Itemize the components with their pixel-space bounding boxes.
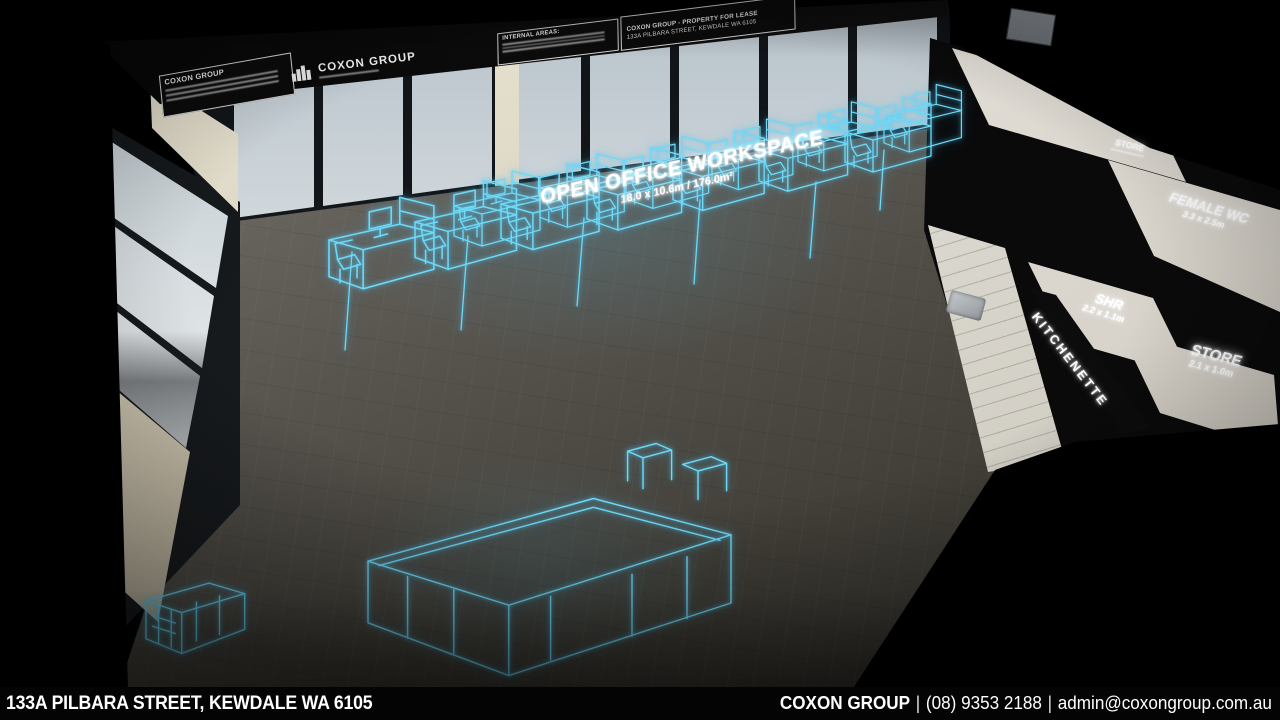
cabinet-wireframe	[146, 583, 245, 653]
email-address: admin@coxongroup.com.au	[1058, 693, 1272, 714]
phone-number: (08) 9353 2188	[926, 693, 1042, 714]
bottom-bar: 133A PILBARA STREET, KEWDALE WA 6105 COX…	[0, 687, 1280, 720]
property-address: 133A PILBARA STREET, KEWDALE WA 6105	[6, 693, 372, 715]
separator: |	[916, 693, 920, 714]
separator: |	[1048, 693, 1052, 714]
company-name: COXON GROUP	[780, 693, 910, 714]
video-frame: COXON GROUP COXON GROUP INTERNAL AREAS: …	[0, 0, 1280, 720]
wireframe-overlay	[0, 0, 1280, 720]
reception-desk-wireframe	[368, 444, 731, 676]
contact-info: COXON GROUP | (08) 9353 2188 | admin@cox…	[780, 693, 1272, 714]
